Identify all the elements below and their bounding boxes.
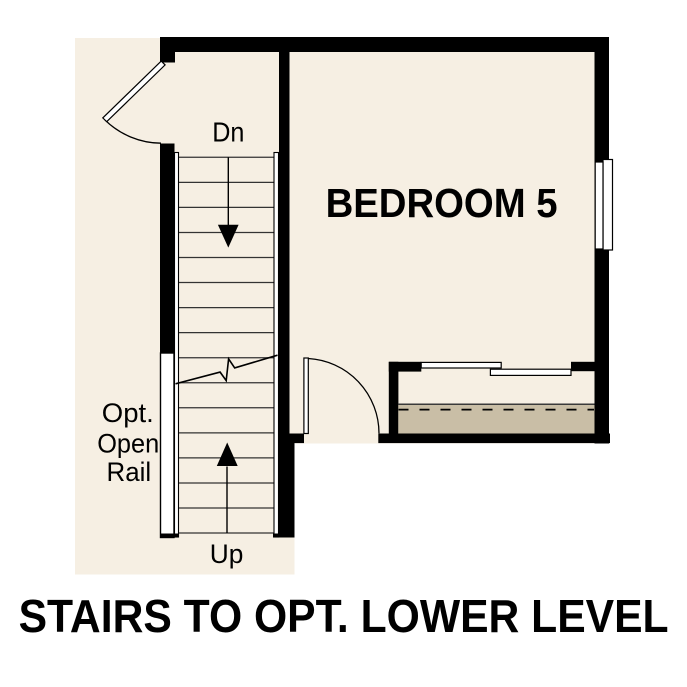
svg-text:Dn: Dn bbox=[212, 117, 244, 148]
svg-text:Opt.: Opt. bbox=[102, 398, 154, 428]
svg-text:Up: Up bbox=[210, 539, 244, 569]
svg-text:STAIRS TO OPT. LOWER LEVEL: STAIRS TO OPT. LOWER LEVEL bbox=[19, 590, 669, 642]
svg-text:BEDROOM 5: BEDROOM 5 bbox=[326, 180, 558, 226]
svg-text:Rail: Rail bbox=[107, 457, 152, 487]
svg-text:Open: Open bbox=[97, 429, 159, 459]
